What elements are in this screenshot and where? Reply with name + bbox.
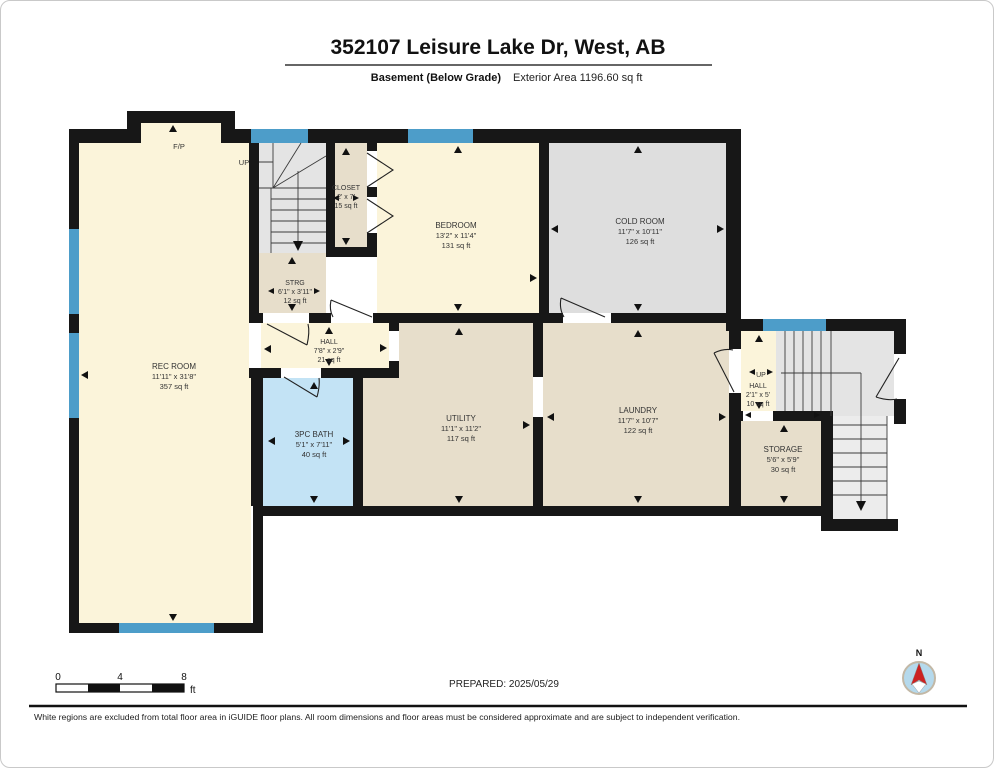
svg-text:HALL: HALL (320, 339, 338, 346)
scale-bar: 0 4 8 ft (55, 672, 196, 696)
svg-text:2' x 7': 2' x 7' (337, 194, 355, 201)
fireplace-label: F/P (173, 142, 185, 151)
svg-text:11'1" x 11'2": 11'1" x 11'2" (441, 424, 481, 433)
svg-text:13'2" x 11'4": 13'2" x 11'4" (436, 231, 477, 240)
up-label-right: UP (756, 372, 766, 379)
svg-text:3PC BATH: 3PC BATH (295, 430, 334, 439)
footer: 0 4 8 ft PREPARED: 2025/05/29 N White re… (29, 648, 967, 722)
svg-text:8: 8 (181, 672, 187, 683)
window-left-1 (69, 229, 79, 314)
svg-text:5'1" x 7'11": 5'1" x 7'11" (296, 440, 333, 449)
floorplan-page: 352107 Leisure Lake Dr, West, AB Basemen… (0, 0, 994, 768)
svg-text:HALL: HALL (749, 383, 767, 390)
svg-text:12 sq ft: 12 sq ft (284, 298, 307, 305)
svg-text:30 sq ft: 30 sq ft (771, 465, 797, 474)
svg-text:COLD ROOM: COLD ROOM (615, 217, 665, 226)
stairs-main-area (259, 143, 326, 253)
svg-text:0: 0 (55, 672, 61, 683)
window-top-hall2 (763, 319, 826, 331)
header: 352107 Leisure Lake Dr, West, AB Basemen… (285, 36, 712, 84)
svg-text:21 sq ft: 21 sq ft (318, 357, 341, 364)
svg-text:126 sq ft: 126 sq ft (626, 237, 656, 246)
svg-text:357 sq ft: 357 sq ft (160, 382, 190, 391)
svg-text:REC ROOM: REC ROOM (152, 362, 196, 371)
svg-text:122 sq ft: 122 sq ft (624, 426, 654, 435)
svg-text:CLOSET: CLOSET (332, 185, 361, 192)
svg-text:6'1" x 3'11": 6'1" x 3'11" (278, 289, 312, 296)
svg-text:11'7" x 10'11": 11'7" x 10'11" (618, 227, 663, 236)
floorplan-canvas: 352107 Leisure Lake Dr, West, AB Basemen… (1, 1, 994, 768)
svg-text:BEDROOM: BEDROOM (435, 221, 477, 230)
svg-text:10 sq ft: 10 sq ft (747, 401, 770, 408)
floor-label: Basement (Below Grade) (371, 72, 502, 84)
svg-text:LAUNDRY: LAUNDRY (619, 406, 658, 415)
compass: N (903, 648, 935, 694)
exterior-area-label: Exterior Area 1196.60 sq ft (513, 72, 642, 84)
up-label-main: UP (239, 158, 249, 167)
window-top-bedroom (408, 129, 473, 143)
disclaimer-text: White regions are excluded from total fl… (34, 712, 740, 722)
svg-text:UTILITY: UTILITY (446, 414, 476, 423)
north-label: N (916, 648, 923, 658)
svg-text:15 sq ft: 15 sq ft (335, 203, 358, 210)
scale-unit: ft (190, 685, 196, 696)
page-title: 352107 Leisure Lake Dr, West, AB (330, 36, 665, 59)
svg-text:STORAGE: STORAGE (764, 445, 803, 454)
room-fills (79, 123, 894, 623)
prepared-date: PREPARED: 2025/05/29 (449, 679, 559, 690)
svg-text:11'11" x 31'8": 11'11" x 31'8" (152, 372, 197, 381)
svg-text:11'7" x 10'7": 11'7" x 10'7" (618, 416, 659, 425)
room-utility-l (363, 378, 403, 506)
svg-text:2'1" x 5': 2'1" x 5' (746, 392, 770, 399)
svg-text:40 sq ft: 40 sq ft (302, 450, 328, 459)
window-top-stairs (251, 129, 308, 143)
svg-text:4: 4 (117, 672, 123, 683)
svg-text:117 sq ft: 117 sq ft (447, 434, 476, 443)
window-bottom (119, 623, 214, 633)
window-left-2 (69, 333, 79, 418)
svg-text:STRG: STRG (285, 280, 304, 287)
svg-text:5'6" x 5'9": 5'6" x 5'9" (767, 455, 800, 464)
svg-text:7'8" x 2'9": 7'8" x 2'9" (314, 348, 345, 355)
fireplace-nook (141, 123, 221, 143)
svg-text:131 sq ft: 131 sq ft (442, 241, 472, 250)
